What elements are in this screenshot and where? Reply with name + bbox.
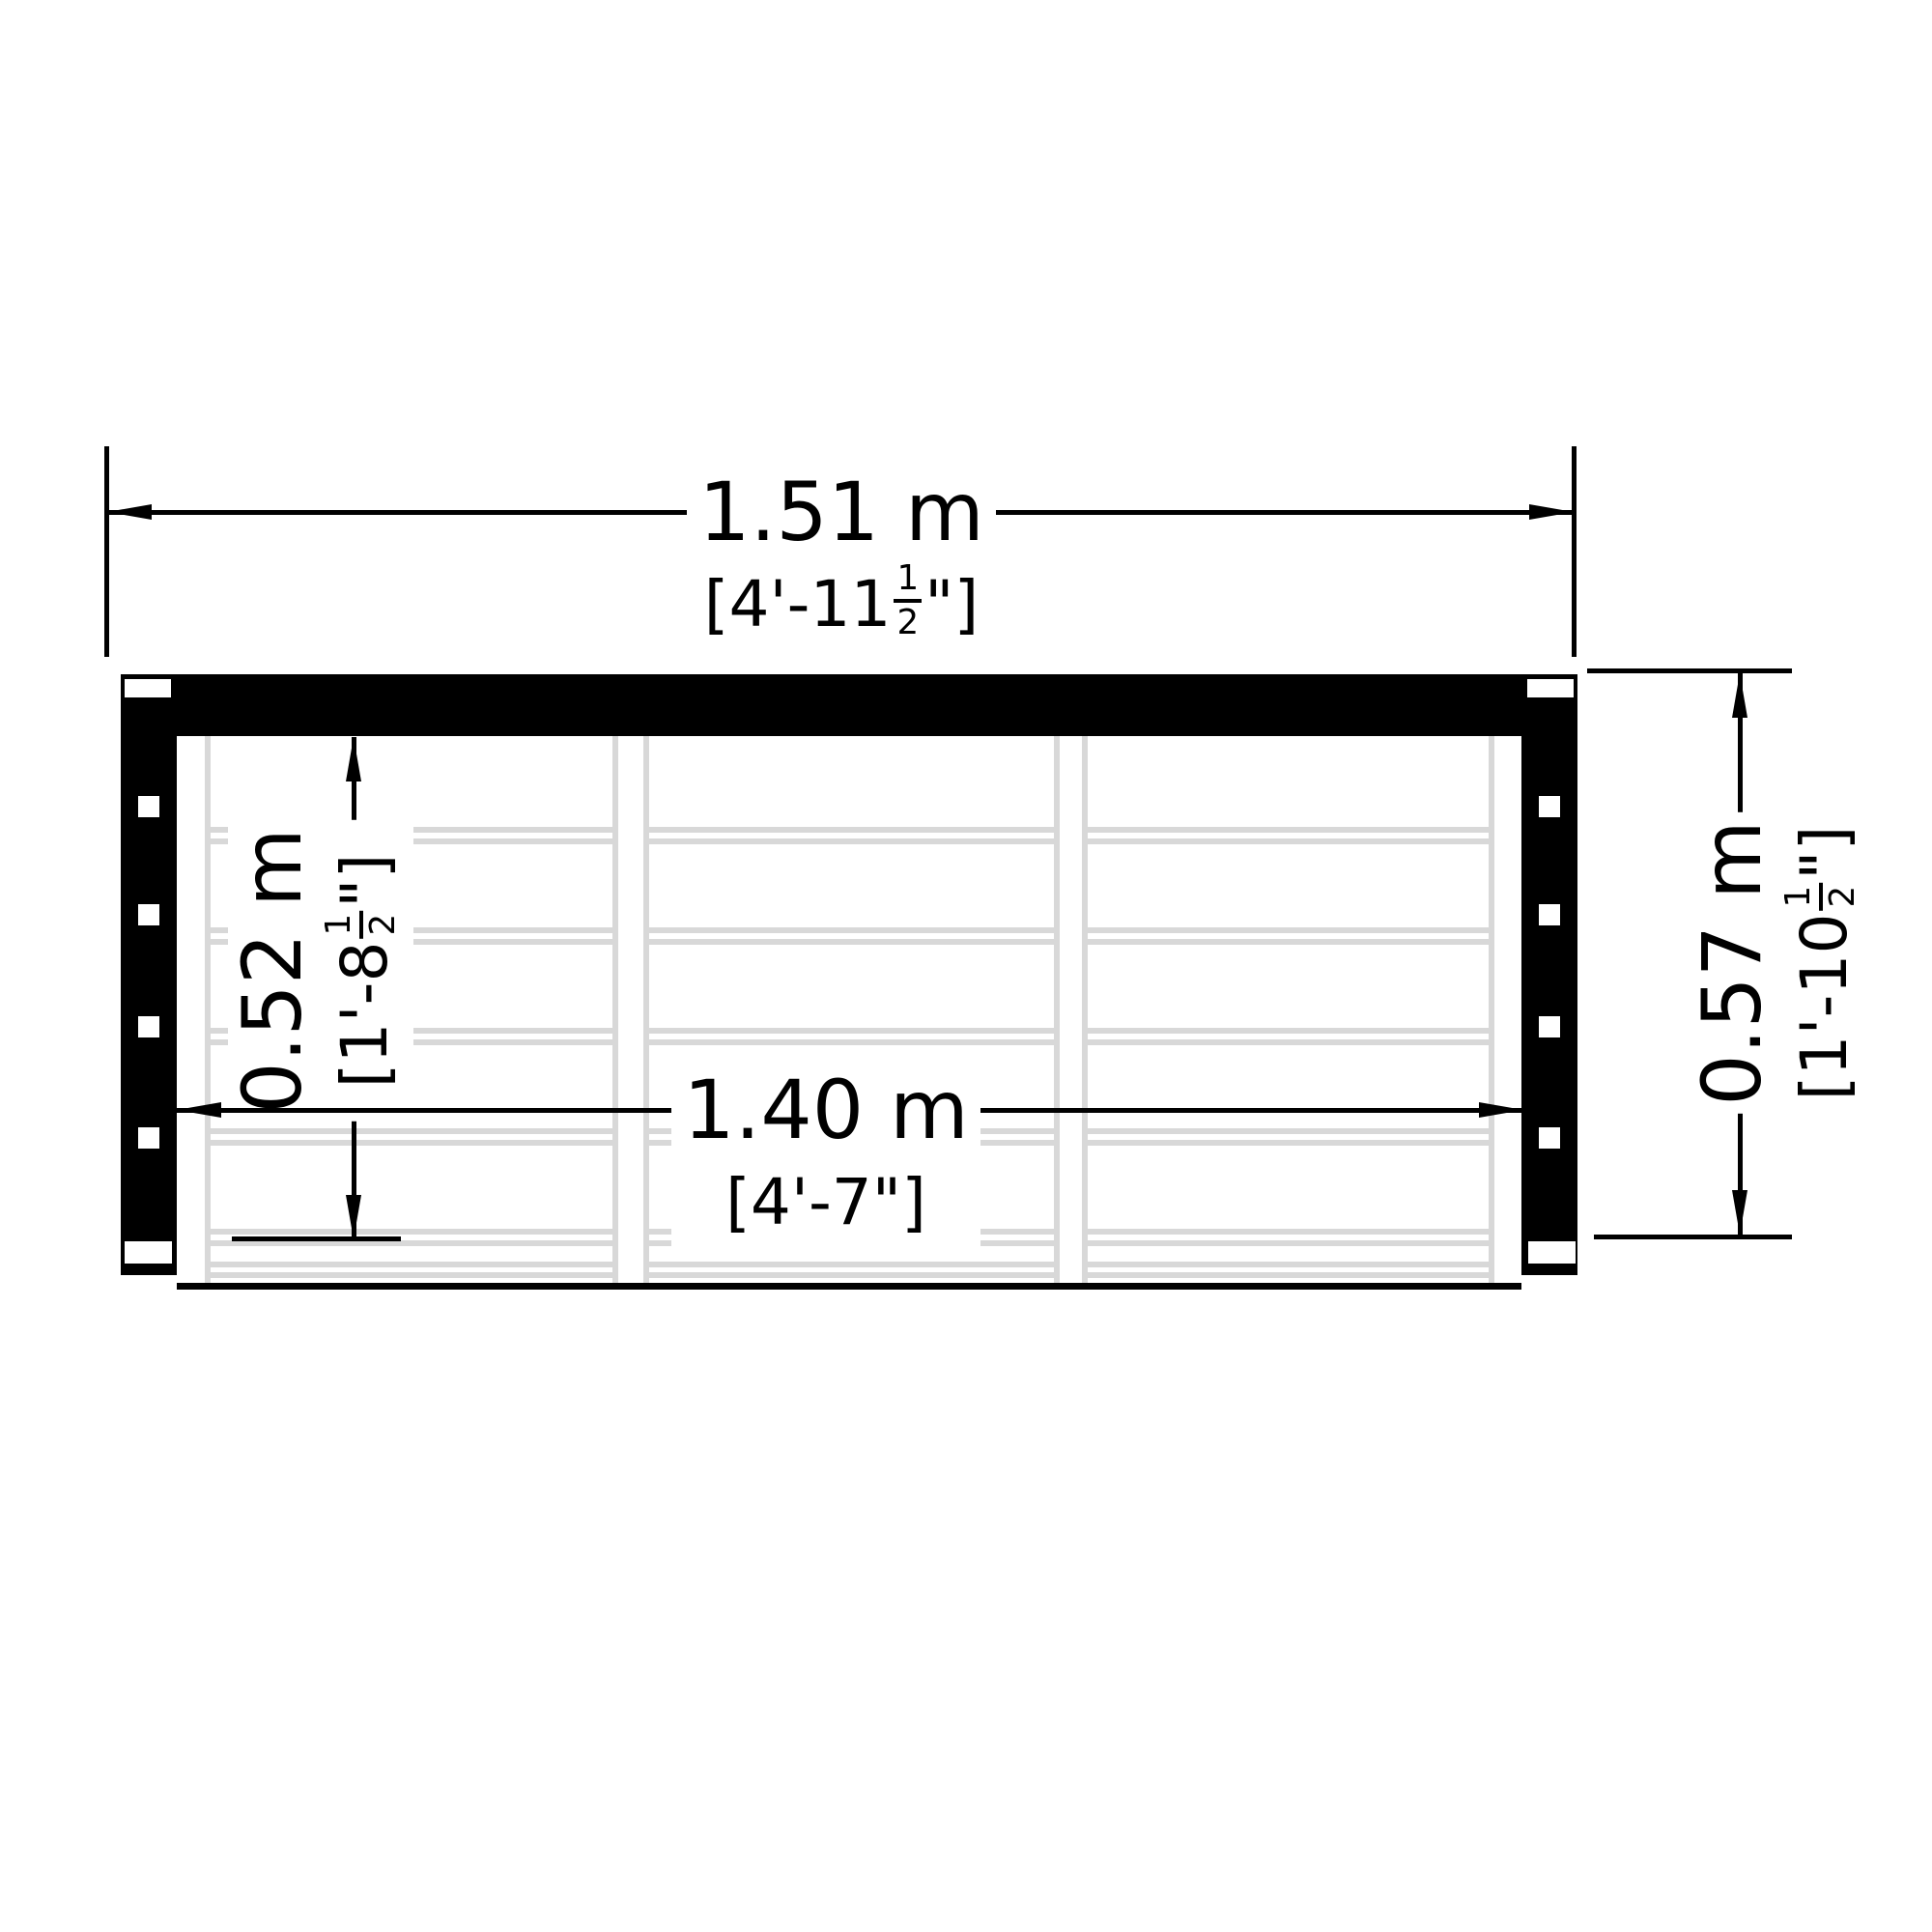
dim-internal-depth-label: 0.52 m [1'-812"]	[228, 820, 413, 1122]
arrow-up-icon	[1732, 673, 1747, 718]
fixing-hole	[1539, 1016, 1560, 1037]
floor-joist-line	[1054, 736, 1060, 1283]
top-wall-bar	[121, 674, 1577, 736]
dim-metric-text: 1.51 m	[687, 468, 996, 556]
dim-imperial-text: [4'-1112"]	[687, 556, 996, 653]
corner-notch-bottom-left	[125, 1241, 172, 1264]
dim-imperial-text: [1'-812"]	[317, 828, 413, 1114]
dim-overall-width-ext-line-left	[104, 446, 109, 657]
dim-metric-text: 0.52 m	[228, 828, 317, 1114]
dim-internal-depth-ext-tick	[232, 1236, 401, 1241]
corner-notch-top-left	[125, 679, 171, 697]
fixing-hole	[1539, 796, 1560, 817]
dim-imperial-text: [4'-7"]	[671, 1154, 980, 1251]
fixing-hole	[138, 796, 159, 817]
floor-gap-right-edge	[1494, 736, 1521, 1283]
floor-joist-line	[1489, 736, 1494, 1283]
floor-joist-line	[205, 736, 211, 1283]
floor-gap-left-edge	[177, 736, 205, 1283]
arrow-down-icon	[1732, 1190, 1747, 1235]
fixing-hole	[138, 904, 159, 925]
corner-notch-top-right	[1527, 679, 1574, 697]
arrow-up-icon	[346, 737, 361, 781]
dim-overall-depth-label: 0.57 m [1'-1012"]	[1688, 812, 1873, 1114]
floor-plank-line	[177, 1272, 1521, 1278]
floor-gap-divider-1	[618, 736, 643, 1283]
floor-joist-line	[612, 736, 618, 1283]
dim-imperial-text: [1'-1012"]	[1776, 820, 1873, 1106]
dim-overall-width-label: 1.51 m [4'-1112"]	[687, 468, 996, 653]
arrow-right-icon	[1529, 504, 1574, 520]
fixing-hole	[1539, 1127, 1560, 1149]
dim-metric-text: 1.40 m	[671, 1065, 980, 1154]
dim-overall-depth-ext-tick-top	[1587, 668, 1792, 673]
dim-overall-width-ext-line-right	[1572, 446, 1577, 657]
fraction: 12	[1781, 883, 1860, 911]
dim-internal-width-label: 1.40 m [4'-7"]	[671, 1065, 980, 1251]
floor-front-edge	[177, 1283, 1521, 1290]
right-wall-bar	[1521, 674, 1577, 1275]
floor-plank-line	[177, 1262, 1521, 1267]
fraction: 12	[894, 561, 922, 639]
fixing-hole	[138, 1016, 159, 1037]
floor-gap-divider-2	[1060, 736, 1082, 1283]
floor-joist-line	[1082, 736, 1088, 1283]
left-wall-bar	[121, 674, 177, 1275]
dim-overall-depth-ext-tick-bottom	[1594, 1235, 1792, 1239]
fixing-hole	[1539, 904, 1560, 925]
arrow-down-icon	[346, 1195, 361, 1239]
corner-notch-bottom-right	[1528, 1241, 1576, 1264]
arrow-left-icon	[107, 504, 152, 520]
arrow-right-icon	[1479, 1102, 1523, 1118]
arrow-left-icon	[177, 1102, 221, 1118]
fixing-hole	[138, 1127, 159, 1149]
fraction: 12	[322, 911, 400, 939]
dim-metric-text: 0.57 m	[1688, 820, 1776, 1106]
floor-joist-line	[643, 736, 649, 1283]
plan-drawing-canvas: 1.51 m [4'-1112"] 1.40 m [4'-7"] 0.52 m …	[0, 0, 1932, 1932]
